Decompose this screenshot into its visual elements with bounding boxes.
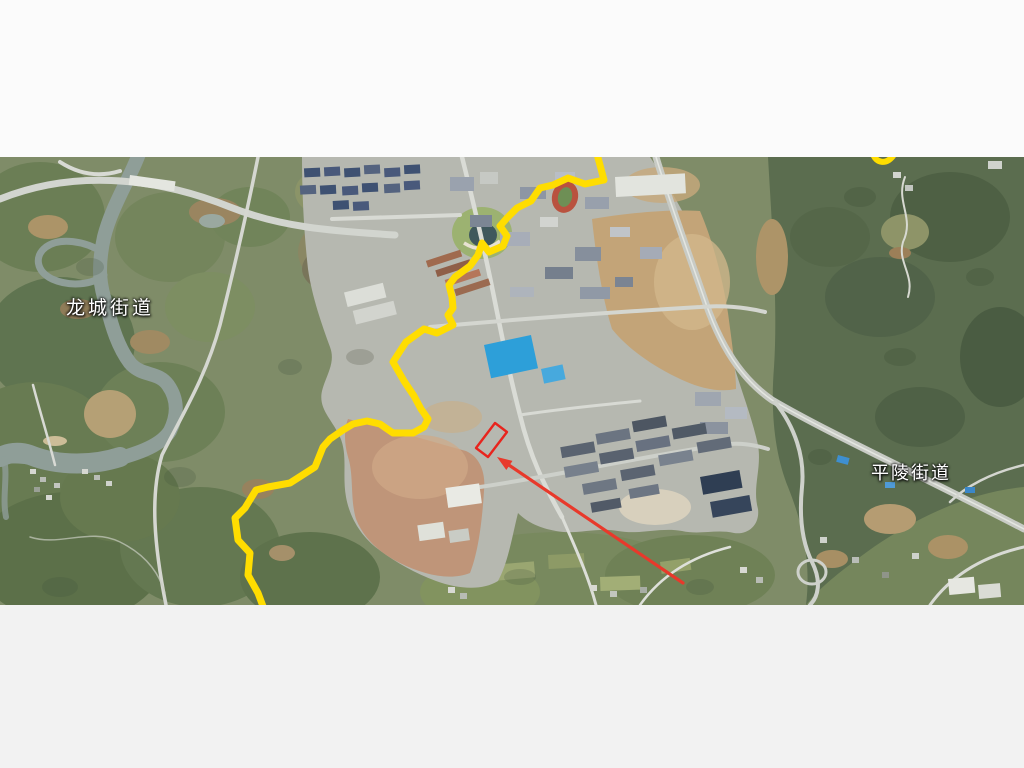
satellite-map-image [0,157,1024,605]
pond [199,214,225,228]
white-building-southeast [948,577,975,595]
large-white-factory [615,173,686,197]
letterbox-top [0,0,1024,157]
satellite-imagery [0,157,1024,605]
white-building-southeast [978,583,1001,599]
map-label-longcheng: 龙城街道 [66,293,154,320]
screenshot-canvas: 龙城街道 平陵街道 [0,0,1024,768]
letterbox-bottom [0,605,1024,768]
map-label-pingling: 平陵街道 [871,459,951,485]
